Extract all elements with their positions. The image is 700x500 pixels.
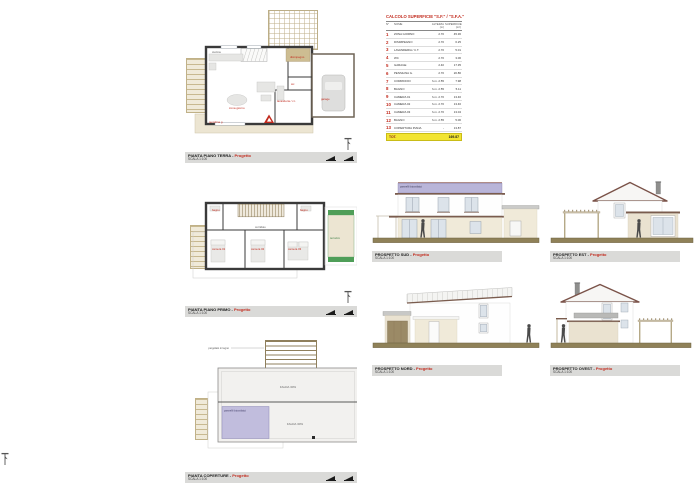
table-row: 1ZONA GIORNO2.7045.36 [386,31,462,39]
scale-bar-icons [326,476,354,481]
person-figure [526,324,531,342]
scale-bar-icon [326,156,336,161]
svg-text:lavanderia / c.t.: lavanderia / c.t. [277,99,296,103]
total-value: 169.87 [449,135,459,139]
north-arrow-icon [343,136,353,151]
svg-text:pannelli fotovoltaici: pannelli fotovoltaici [224,409,246,413]
surface-calc-table: CALCOLO SUPERFICIE "S.F." / "S.F.A." N° … [386,14,462,141]
canopy-line [626,212,680,214]
elevation-west [550,280,695,350]
elevation-east [550,180,695,248]
drawing-scale: SCALA 1:100 [375,371,499,375]
large-window [651,216,675,237]
car [322,75,345,111]
pergola-left [563,210,600,238]
col-header-height: ALTEZZA (m) [428,23,444,29]
stairs [238,204,284,217]
drawing-sheet: cucina zona giorno disimpegno wc lavande… [0,0,700,500]
table-title: CALCOLO SUPERFICIE "S.F." / "S.F.A." [386,14,462,19]
svg-text:terrazzo: terrazzo [330,236,341,240]
elevation-south: pannelli fotovoltaici [372,180,540,248]
ground-line [551,238,693,243]
pergola-label: pergolato in legno [208,346,264,350]
svg-text:zona giorno: zona giorno [229,106,245,110]
gable-roof [561,285,639,303]
svg-text:garage: garage [321,97,330,101]
scale-bar-icon [344,476,354,481]
scale-bar-icons [326,156,354,161]
svg-text:camera 01: camera 01 [212,247,226,251]
drawing-scale: SCALA 1:100 [375,257,499,261]
upper-windows [405,198,479,213]
pergola-left [376,216,398,238]
table-row: 2DISIMPEGNO2.706.25 [386,39,462,47]
upper-window [614,203,625,218]
scale-bar-icon [326,476,336,481]
table-row: 11CAMERA 03h.m. 2.7013.04 [386,109,462,117]
svg-text:pergolato in legno: pergolato in legno [208,346,229,350]
col-header-num: N° [386,23,393,29]
table-row: 13COPERTURA PIANA-13.87 [386,124,462,132]
table-row: 6PENSILINA G.2.7020.86 [386,70,462,78]
ground-line [373,343,539,348]
titleblock-first-floor: PIANTA PIANO PRIMO - Progetto SCALA 1:10… [185,306,357,317]
canopy-line [389,216,510,218]
ground-floor-plan: cucina zona giorno disimpegno wc lavande… [185,30,357,135]
titleblock-elevation-south: PROSPETTO SUD - Progetto SCALA 1:100 [372,251,502,262]
col-header-name: NOME [394,23,427,29]
ground-line [373,238,539,243]
garage-volume [502,206,539,239]
table-row: 5GARAGE2.4017.35 [386,62,462,70]
scale-bar-icon [344,156,354,161]
pv-roof-band: pannelli fotovoltaici [398,182,502,193]
drawing-scale: SCALA 1:100 [553,371,677,375]
table-row: 3LAVANDERIA / C.T.2.705.01 [386,47,462,55]
scale-bar-icon [344,310,354,315]
col-header-area: SUPERFICIE (m²) [445,23,461,29]
ground-line [551,343,691,348]
chimney-mark [312,436,315,439]
person-figure [561,324,566,342]
chimney [655,181,661,194]
svg-text:disimpegno: disimpegno [290,55,305,59]
table-row: 10CAMERA 02h.m. 2.7013.46 [386,101,462,109]
svg-text:camera 03: camera 03 [288,247,302,251]
drawing-scale: SCALA 1:100 [553,257,677,261]
table-row: 9CAMERA 01h.m. 2.7013.46 [386,93,462,101]
svg-text:FALDA 30%: FALDA 30% [287,422,304,426]
garage-volume [383,312,411,344]
svg-text:pannelli fotovoltaici: pannelli fotovoltaici [400,185,422,189]
north-arrow-icon [0,451,10,466]
svg-text:bagno: bagno [300,208,308,212]
table-row: 7CORRIDOIOh.m. 2.557.98 [386,78,462,86]
table-total-row: TOT. 169.87 [386,133,462,141]
titleblock-ground-floor: PIANTA PIANO TERRA - Progetto SCALA 1:10… [185,152,357,163]
photovoltaic-panels-area: pannelli fotovoltaici [222,407,269,439]
first-floor-plan: bagno bagno corridoio camera 01 camera 0… [185,195,357,283]
table-header-row: N° NOME ALTEZZA (m) SUPERFICIE (m²) [386,21,462,31]
table-row: 8BAGNOh.m. 2.555.11 [386,85,462,93]
svg-text:wc: wc [291,82,295,86]
svg-text:pensilina g.: pensilina g. [209,120,223,124]
lower-wall [569,322,618,343]
titleblock-elevation-east: PROSPETTO EST - Progetto SCALA 1:100 [550,251,680,262]
titleblock-elevation-north: PROSPETTO NORD - Progetto SCALA 1:100 [372,365,502,376]
parapet-band [574,313,618,318]
svg-text:cucina: cucina [212,50,221,54]
elevation-north [372,280,540,350]
titleblock-elevation-west: PROSPETTO OVEST - Progetto SCALA 1:100 [550,365,680,376]
total-label: TOT. [389,135,396,139]
canopy-line [567,321,620,323]
entry-porch [413,317,459,344]
scale-bar-icons [326,310,354,315]
svg-text:bagno: bagno [212,208,220,212]
scale-bar-icon [326,310,336,315]
titleblock-roof-plan: PIANTA COPERTURE - Progetto SCALA 1:100 [185,472,357,483]
svg-text:FALDA 30%: FALDA 30% [280,385,297,389]
svg-text:corridoio: corridoio [255,225,266,229]
table-row: 4WC2.703.06 [386,54,462,62]
north-arrow-icon [343,289,353,304]
svg-text:camera 02: camera 02 [251,247,265,251]
mono-roof [407,288,512,304]
roof-plan: pergolato in legno pannelli fotovoltaici… [185,335,357,457]
eaves-line [395,193,505,195]
pergola-right [638,318,673,343]
table-row: 12BAGNOh.m. 2.555.06 [386,117,462,125]
